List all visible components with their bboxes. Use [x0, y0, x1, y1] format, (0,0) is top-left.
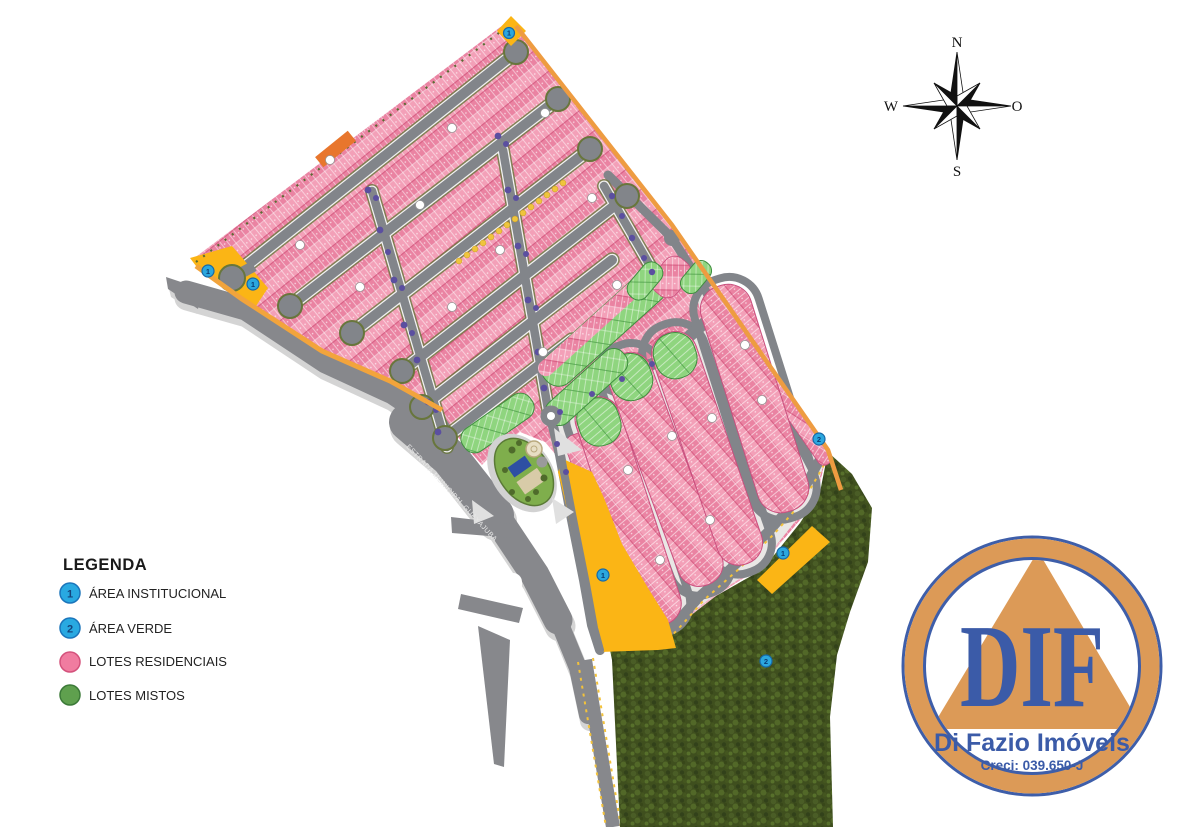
svg-text:W: W	[884, 99, 899, 115]
svg-text:LOTES RESIDENCIAIS: LOTES RESIDENCIAIS	[89, 654, 227, 669]
svg-text:1: 1	[67, 589, 73, 601]
svg-text:Di Fazio Imóveis: Di Fazio Imóveis	[934, 729, 1130, 757]
svg-text:2: 2	[817, 435, 821, 444]
svg-text:1: 1	[251, 280, 255, 289]
svg-text:O: O	[1012, 99, 1023, 115]
svg-text:ÁREA VERDE: ÁREA VERDE	[89, 621, 172, 636]
svg-text:LEGENDA: LEGENDA	[63, 556, 147, 574]
svg-text:Creci: 039.650-J: Creci: 039.650-J	[981, 758, 1084, 773]
svg-text:LOTES MISTOS: LOTES MISTOS	[89, 688, 185, 703]
svg-text:ÁREA INSTITUCIONAL: ÁREA INSTITUCIONAL	[89, 586, 226, 601]
svg-text:1: 1	[507, 29, 511, 38]
svg-text:S: S	[953, 164, 961, 180]
svg-text:2: 2	[67, 624, 73, 636]
svg-text:1: 1	[781, 549, 785, 558]
svg-text:1: 1	[206, 267, 210, 276]
svg-text:DIF: DIF	[960, 600, 1104, 732]
svg-text:N: N	[952, 35, 963, 51]
svg-text:2: 2	[764, 657, 768, 666]
svg-text:1: 1	[601, 571, 605, 580]
